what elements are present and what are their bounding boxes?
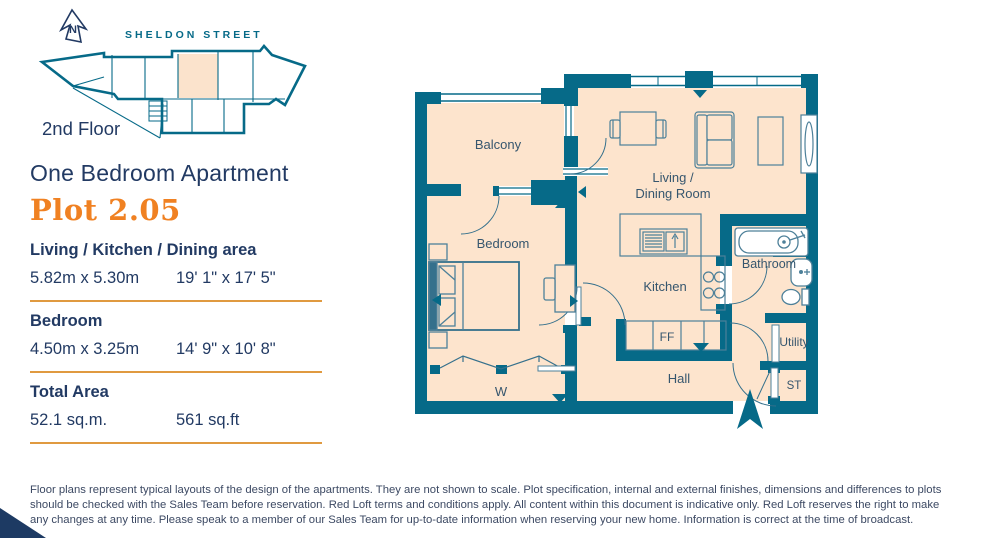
balcony-side-window bbox=[564, 106, 574, 136]
media-unit-icon bbox=[801, 115, 817, 173]
spec-name: Total Area bbox=[30, 383, 322, 402]
entry-door-leaf bbox=[771, 368, 778, 398]
room-label-fridge-freezer: FF bbox=[660, 330, 675, 344]
plot-number: Plot 2.05 bbox=[30, 193, 322, 227]
room-label-bathroom: Bathroom bbox=[742, 257, 796, 271]
floor-plan-svg: Balcony Living / Dining Room Bedroom Kit… bbox=[413, 48, 838, 448]
spec-imperial: 561 sq.ft bbox=[176, 411, 239, 430]
dining-chair-icon bbox=[656, 120, 666, 138]
pillow-icon bbox=[439, 298, 455, 326]
spec-name: Bedroom bbox=[30, 312, 322, 331]
stair-icon bbox=[149, 101, 167, 121]
spec-metric: 52.1 sq.m. bbox=[30, 411, 176, 430]
north-arrow-icon: N bbox=[61, 10, 86, 42]
page-title: One Bedroom Apartment bbox=[30, 160, 322, 187]
bedroom-balcony-door-strip bbox=[499, 186, 531, 196]
room-label-kitchen: Kitchen bbox=[643, 279, 686, 294]
balcony-living-door-strip bbox=[563, 167, 608, 176]
nightstand-icon bbox=[429, 244, 447, 260]
bathroom-door-opening bbox=[720, 266, 732, 304]
dining-chair-icon bbox=[610, 120, 620, 138]
room-label-bedroom: Bedroom bbox=[477, 236, 530, 251]
room-label-utility: Utility bbox=[779, 335, 808, 349]
spec-living: Living / Kitchen / Dining area 5.82m x 5… bbox=[30, 241, 322, 302]
room-label-hall: Hall bbox=[668, 371, 691, 386]
north-label: N bbox=[69, 24, 77, 36]
spec-bedroom: Bedroom 4.50m x 3.25m 14' 9" x 10' 8" bbox=[30, 312, 322, 373]
bed-icon bbox=[429, 262, 519, 330]
sofa-icon bbox=[695, 112, 734, 168]
bathtub-icon bbox=[735, 228, 808, 256]
utility-door-leaf bbox=[772, 325, 779, 362]
spec-metric: 4.50m x 3.25m bbox=[30, 340, 176, 359]
toilet-icon bbox=[782, 289, 809, 305]
room-label-store: ST bbox=[787, 380, 802, 392]
corner-wedge-decoration bbox=[0, 508, 46, 538]
spec-total-area: Total Area 52.1 sq.m. 561 sq.ft bbox=[30, 383, 322, 444]
room-label-living-1: Living / bbox=[652, 170, 694, 185]
room-label-wardrobe: W bbox=[495, 384, 508, 399]
pillow-icon bbox=[439, 266, 455, 294]
floorplan-page: N SHELDON STREET bbox=[0, 0, 994, 538]
info-panel: One Bedroom Apartment Plot 2.05 Living /… bbox=[30, 160, 322, 454]
spec-imperial: 14' 9" x 10' 8" bbox=[176, 340, 276, 359]
site-plan-svg: N SHELDON STREET bbox=[12, 4, 322, 150]
dining-table-icon bbox=[620, 112, 656, 145]
street-label: SHELDON STREET bbox=[125, 29, 263, 41]
desk-chair-icon bbox=[544, 278, 555, 300]
spec-metric: 5.82m x 5.30m bbox=[30, 269, 176, 288]
disclaimer-text: Floor plans represent typical layouts of… bbox=[30, 483, 946, 528]
spec-name: Living / Kitchen / Dining area bbox=[30, 241, 322, 260]
living-window-left bbox=[631, 74, 685, 88]
room-label-balcony: Balcony bbox=[475, 137, 522, 152]
room-label-living-2: Dining Room bbox=[635, 186, 710, 201]
nightstand-icon bbox=[429, 332, 447, 348]
living-window-right bbox=[713, 74, 801, 88]
floor-label: 2nd Floor bbox=[42, 118, 120, 139]
spec-imperial: 19' 1" x 17' 5" bbox=[176, 269, 276, 288]
balcony-window bbox=[441, 92, 541, 103]
highlighted-unit bbox=[178, 54, 218, 98]
coffee-table-icon bbox=[758, 117, 783, 165]
